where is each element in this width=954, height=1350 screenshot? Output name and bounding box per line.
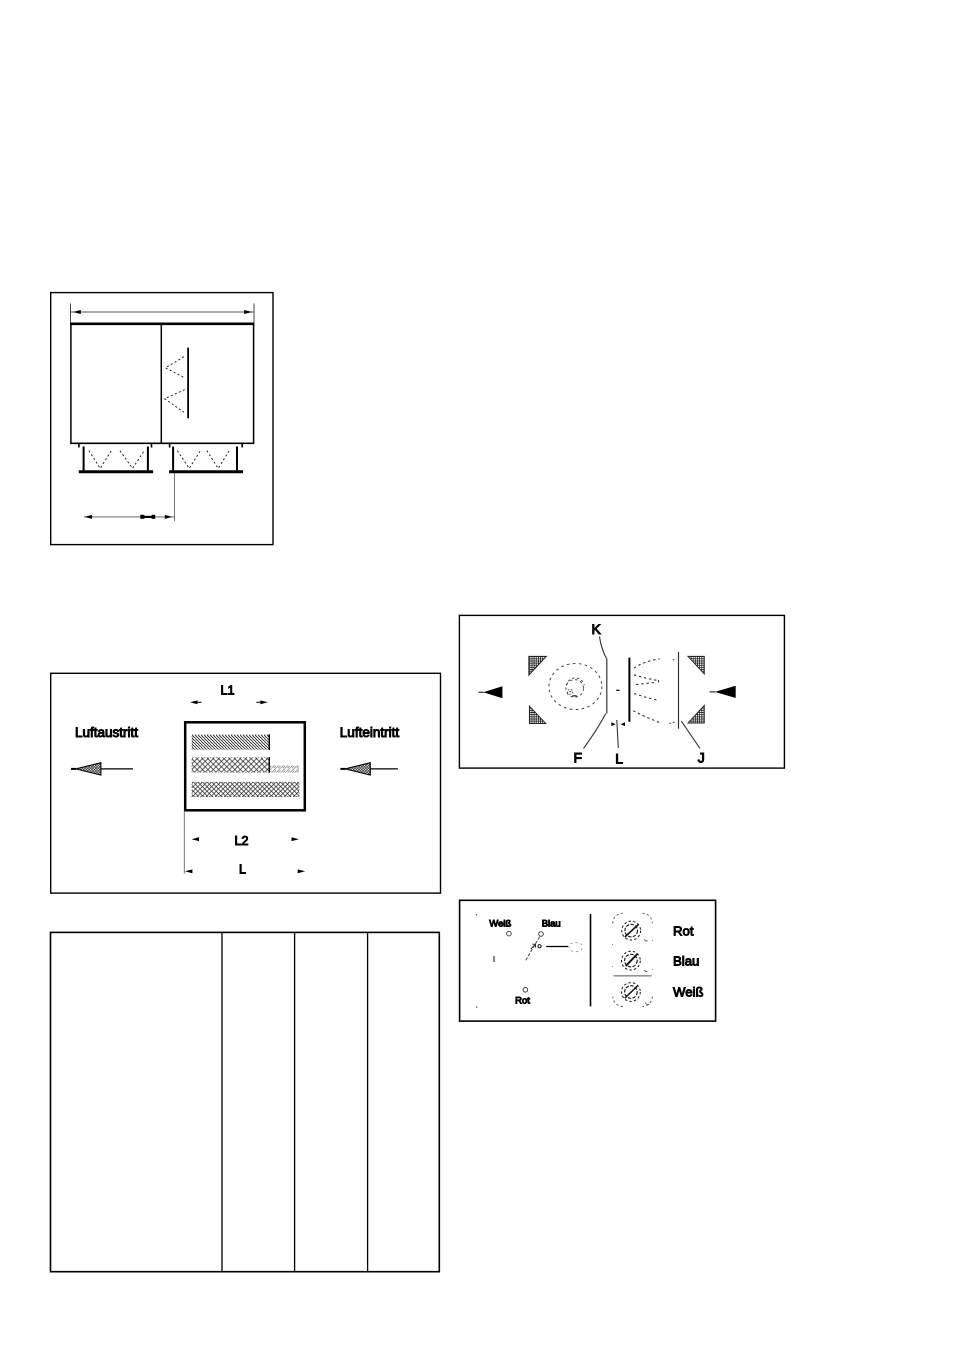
svg-text:J: J <box>698 749 705 765</box>
svg-text:Lufteintritt: Lufteintritt <box>340 725 400 740</box>
svg-text:L: L <box>615 751 623 767</box>
svg-text:Blau: Blau <box>542 919 561 930</box>
svg-text:Rot: Rot <box>515 995 530 1006</box>
svg-text:L2: L2 <box>235 834 249 848</box>
svg-text:Weiß: Weiß <box>673 985 704 1000</box>
svg-text:Blau: Blau <box>673 953 699 968</box>
svg-text:L1: L1 <box>221 684 235 698</box>
svg-text:Rot: Rot <box>673 923 694 938</box>
svg-text:Weiß: Weiß <box>489 919 511 930</box>
svg-text:L: L <box>239 863 246 877</box>
svg-text:Luftaustritt: Luftaustritt <box>75 725 138 740</box>
svg-text:F: F <box>574 749 583 765</box>
svg-text:K: K <box>592 621 602 637</box>
